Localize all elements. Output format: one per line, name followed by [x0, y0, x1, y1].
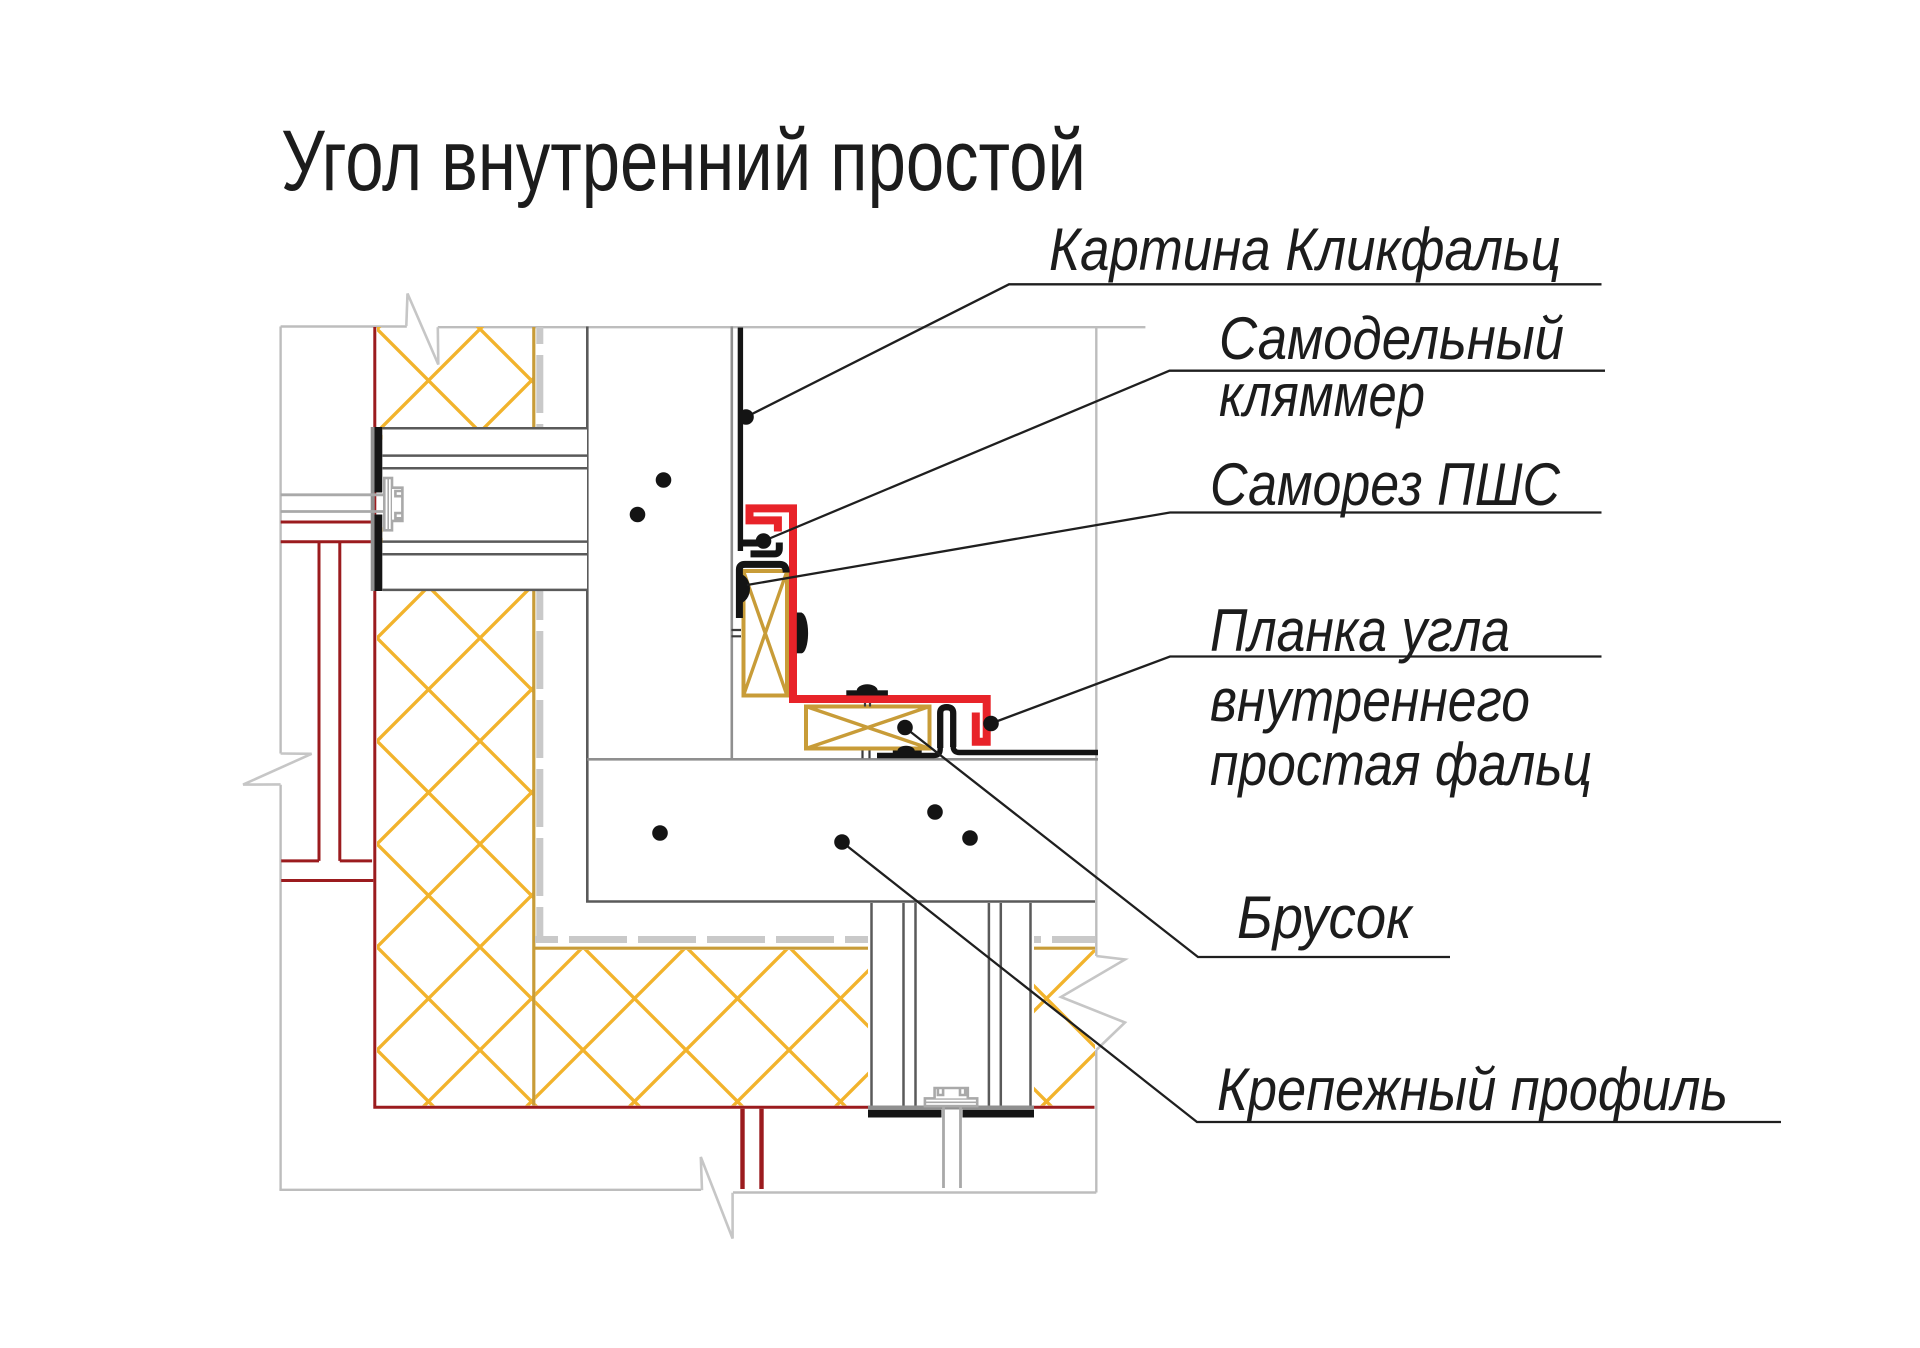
svg-text:внутреннего: внутреннего	[1210, 667, 1530, 734]
svg-text:Брусок: Брусок	[1237, 884, 1414, 951]
svg-text:Саморез ПШС: Саморез ПШС	[1210, 451, 1561, 518]
svg-text:Картина Кликфальц: Картина Кликфальц	[1049, 216, 1561, 283]
svg-text:Планка угла: Планка угла	[1210, 597, 1510, 664]
svg-text:Угол внутренний простой: Угол внутренний простой	[281, 113, 1086, 209]
svg-text:кляммер: кляммер	[1219, 362, 1425, 429]
svg-text:Крепежный профиль: Крепежный профиль	[1217, 1056, 1728, 1123]
svg-text:простая фальц: простая фальц	[1210, 731, 1592, 798]
